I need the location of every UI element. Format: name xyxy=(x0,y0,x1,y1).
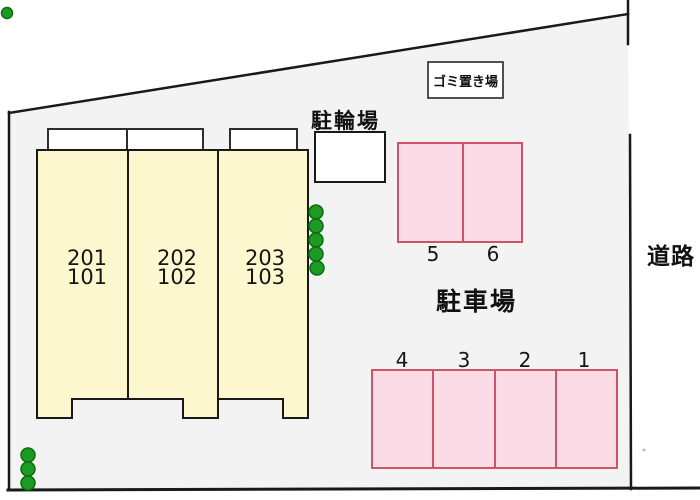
boundary-bottom xyxy=(8,488,700,490)
scan-artifact-dot xyxy=(643,449,646,452)
site-plan-canvas: ゴミ置き場 駐輪場 駐車場 道路 201 101 202 102 203 103… xyxy=(0,0,700,500)
bicycle-parking-label: 駐輪場 xyxy=(311,105,380,135)
unit-label-201-101: 201 101 xyxy=(42,249,132,287)
tree-icon xyxy=(309,233,323,247)
parking-lower-block xyxy=(372,370,617,468)
parking-space-number-2: 2 xyxy=(513,348,537,372)
parking-space-number-6: 6 xyxy=(481,242,505,266)
unit-lower-number: 103 xyxy=(220,268,310,287)
balcony-left-pair xyxy=(48,129,203,151)
garbage-area-label: ゴミ置き場 xyxy=(428,62,503,98)
parking-stalls-5-6 xyxy=(398,143,522,242)
tree-icon xyxy=(310,261,324,275)
unit-lower-number: 102 xyxy=(132,268,222,287)
parking-space-number-1: 1 xyxy=(572,348,596,372)
parking-space-number-4: 4 xyxy=(390,348,414,372)
parking-upper-block xyxy=(398,143,522,242)
parking-space-number-3: 3 xyxy=(452,348,476,372)
tree-icon xyxy=(2,8,13,19)
parking-lot-label: 駐車場 xyxy=(436,282,517,318)
unit-label-203-103: 203 103 xyxy=(220,249,310,287)
road-label: 道路 xyxy=(647,237,695,271)
balcony-rects xyxy=(48,129,297,151)
tree-icon xyxy=(21,448,35,462)
tree-icon xyxy=(309,247,323,261)
tree-icon xyxy=(309,219,323,233)
bicycle-parking-box xyxy=(315,132,385,182)
tree-icon xyxy=(21,476,35,490)
parking-space-number-5: 5 xyxy=(421,242,445,266)
boundary-right-lower xyxy=(630,135,631,489)
unit-lower-number: 101 xyxy=(42,268,132,287)
balcony-right xyxy=(230,129,297,151)
tree-icon xyxy=(309,205,323,219)
tree-icon xyxy=(21,462,35,476)
unit-label-202-102: 202 102 xyxy=(132,249,222,287)
